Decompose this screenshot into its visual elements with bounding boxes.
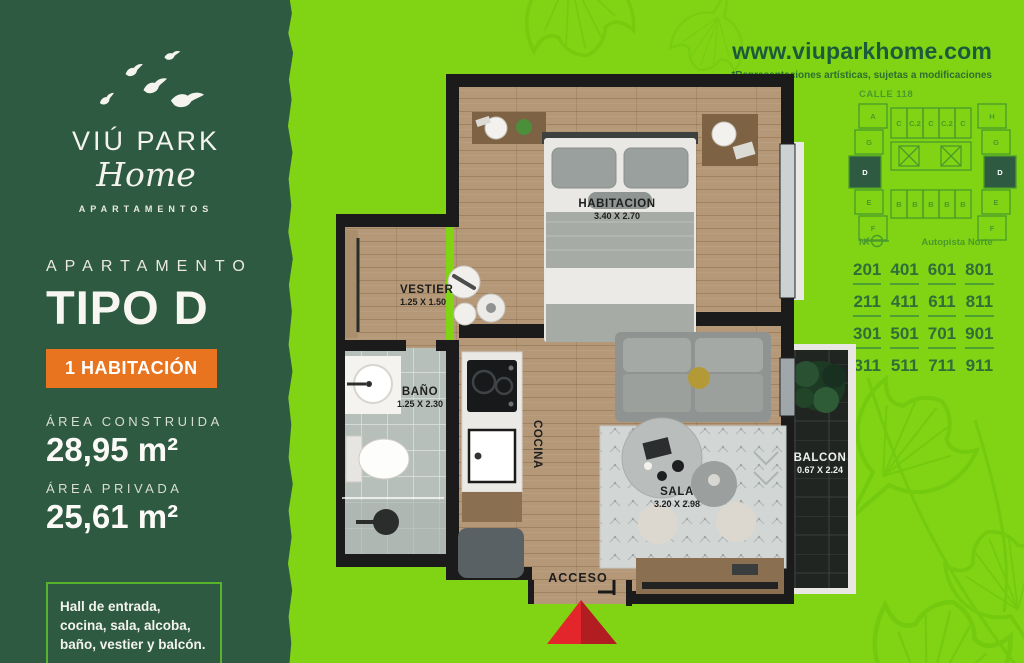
unit-number: 401 <box>890 260 918 285</box>
unit-B2: B <box>912 200 918 209</box>
brand-name: VIÚ PARK <box>46 126 246 157</box>
brand-tagline: APARTAMENTOS <box>46 204 246 214</box>
area-private-label: ÁREA PRIVADA <box>46 481 260 496</box>
unit-number: 811 <box>965 292 993 317</box>
unit-D-left-highlighted: D <box>862 168 868 177</box>
sofa <box>615 332 771 422</box>
sink-icon <box>469 430 515 482</box>
unit-number: 701 <box>928 324 956 349</box>
area-built-value: 28,95 m² <box>46 431 260 469</box>
unit-B5: B <box>960 200 966 209</box>
unit-number: 511 <box>890 356 918 379</box>
desk <box>472 112 546 144</box>
street-top-label: CALLE 118 <box>859 89 913 100</box>
unit-B3: B <box>928 200 934 209</box>
tv-console <box>636 558 784 594</box>
floor-plan-drawing <box>336 60 860 652</box>
unit-C4: C.2 <box>941 119 953 128</box>
unit-E-right: E <box>993 198 998 207</box>
bedrooms-badge: 1 HABITACIÓN <box>46 349 217 388</box>
apartment-type: TIPO D <box>46 280 260 335</box>
unit-A: A <box>870 112 876 121</box>
unit-H: H <box>989 112 994 121</box>
unit-number: 711 <box>928 356 956 379</box>
unit-number: 901 <box>965 324 993 349</box>
unit-C3: C <box>928 119 934 128</box>
sidebar: VIÚ PARK Home APARTAMENTOS APARTAMENTO T… <box>0 0 300 663</box>
spaces-description: Hall de entrada, cocina, sala, alcoba, b… <box>46 582 222 663</box>
bedroom-window <box>780 144 795 298</box>
room-label-bano: BAÑO 1.25 X 2.30 <box>372 386 468 410</box>
brand-logo: VIÚ PARK Home APARTAMENTOS <box>46 46 246 214</box>
access-label: ACCESO <box>518 571 638 585</box>
apartment-label: APARTAMENTO <box>46 258 260 276</box>
birds-icon <box>46 46 246 124</box>
unit-number: 411 <box>890 292 918 317</box>
cooktop-icon <box>467 360 517 412</box>
unit-G-left: G <box>866 138 872 147</box>
balcony-door <box>780 358 795 416</box>
yellow-pillow <box>688 367 710 389</box>
unit-number: 501 <box>890 324 918 349</box>
area-private-value: 25,61 m² <box>46 498 260 536</box>
living-room <box>600 332 786 594</box>
unit-F-right: F <box>990 224 995 233</box>
room-label-balcon: BALCON 0.67 X 2.24 <box>762 452 878 476</box>
unit-number: 611 <box>928 292 956 317</box>
north-label: N <box>859 237 866 248</box>
unit-F-left: F <box>871 224 876 233</box>
unit-C5: C <box>960 119 966 128</box>
room-label-sala: SALA 3.20 X 2.98 <box>617 486 737 510</box>
street-bottom-label: Autopista Norte <box>921 237 992 248</box>
floor-plan: HABITACION 3.40 X 2.70 VESTIER 1.25 X 1.… <box>336 60 860 652</box>
unit-numbers-grid: 201 401 601 801 211 411 611 811 301 501 … <box>853 260 987 379</box>
pouf-left <box>638 504 678 544</box>
unit-C1: C <box>896 119 902 128</box>
area-built-label: ÁREA CONSTRUIDA <box>46 414 260 429</box>
unit-B1: B <box>896 200 902 209</box>
room-label-cocina: COCINA <box>530 396 543 492</box>
key-plan: CALLE 118 A C C.2 C C.2 C H <box>845 86 1020 248</box>
entrance-arrow <box>547 600 617 644</box>
toilet <box>346 436 409 482</box>
unit-number: 801 <box>965 260 993 285</box>
appliance <box>458 528 524 578</box>
unit-G-right: G <box>993 138 999 147</box>
room-label-vestier: VESTIER 1.25 X 1.50 <box>400 284 484 308</box>
room-label-habitacion: HABITACION 3.40 X 2.70 <box>547 198 687 222</box>
unit-number: 911 <box>965 356 993 379</box>
unit-B4: B <box>944 200 950 209</box>
brand-script: Home <box>46 155 246 194</box>
flyer-canvas: VIÚ PARK Home APARTAMENTOS APARTAMENTO T… <box>0 0 1024 663</box>
north-compass-icon <box>865 236 889 247</box>
unit-number: 601 <box>928 260 956 285</box>
kitchen-cabinet <box>462 492 522 522</box>
unit-D-right-highlighted: D <box>997 168 1003 177</box>
bed <box>542 132 698 342</box>
unit-E-left: E <box>866 198 871 207</box>
unit-C2: C.2 <box>909 119 921 128</box>
